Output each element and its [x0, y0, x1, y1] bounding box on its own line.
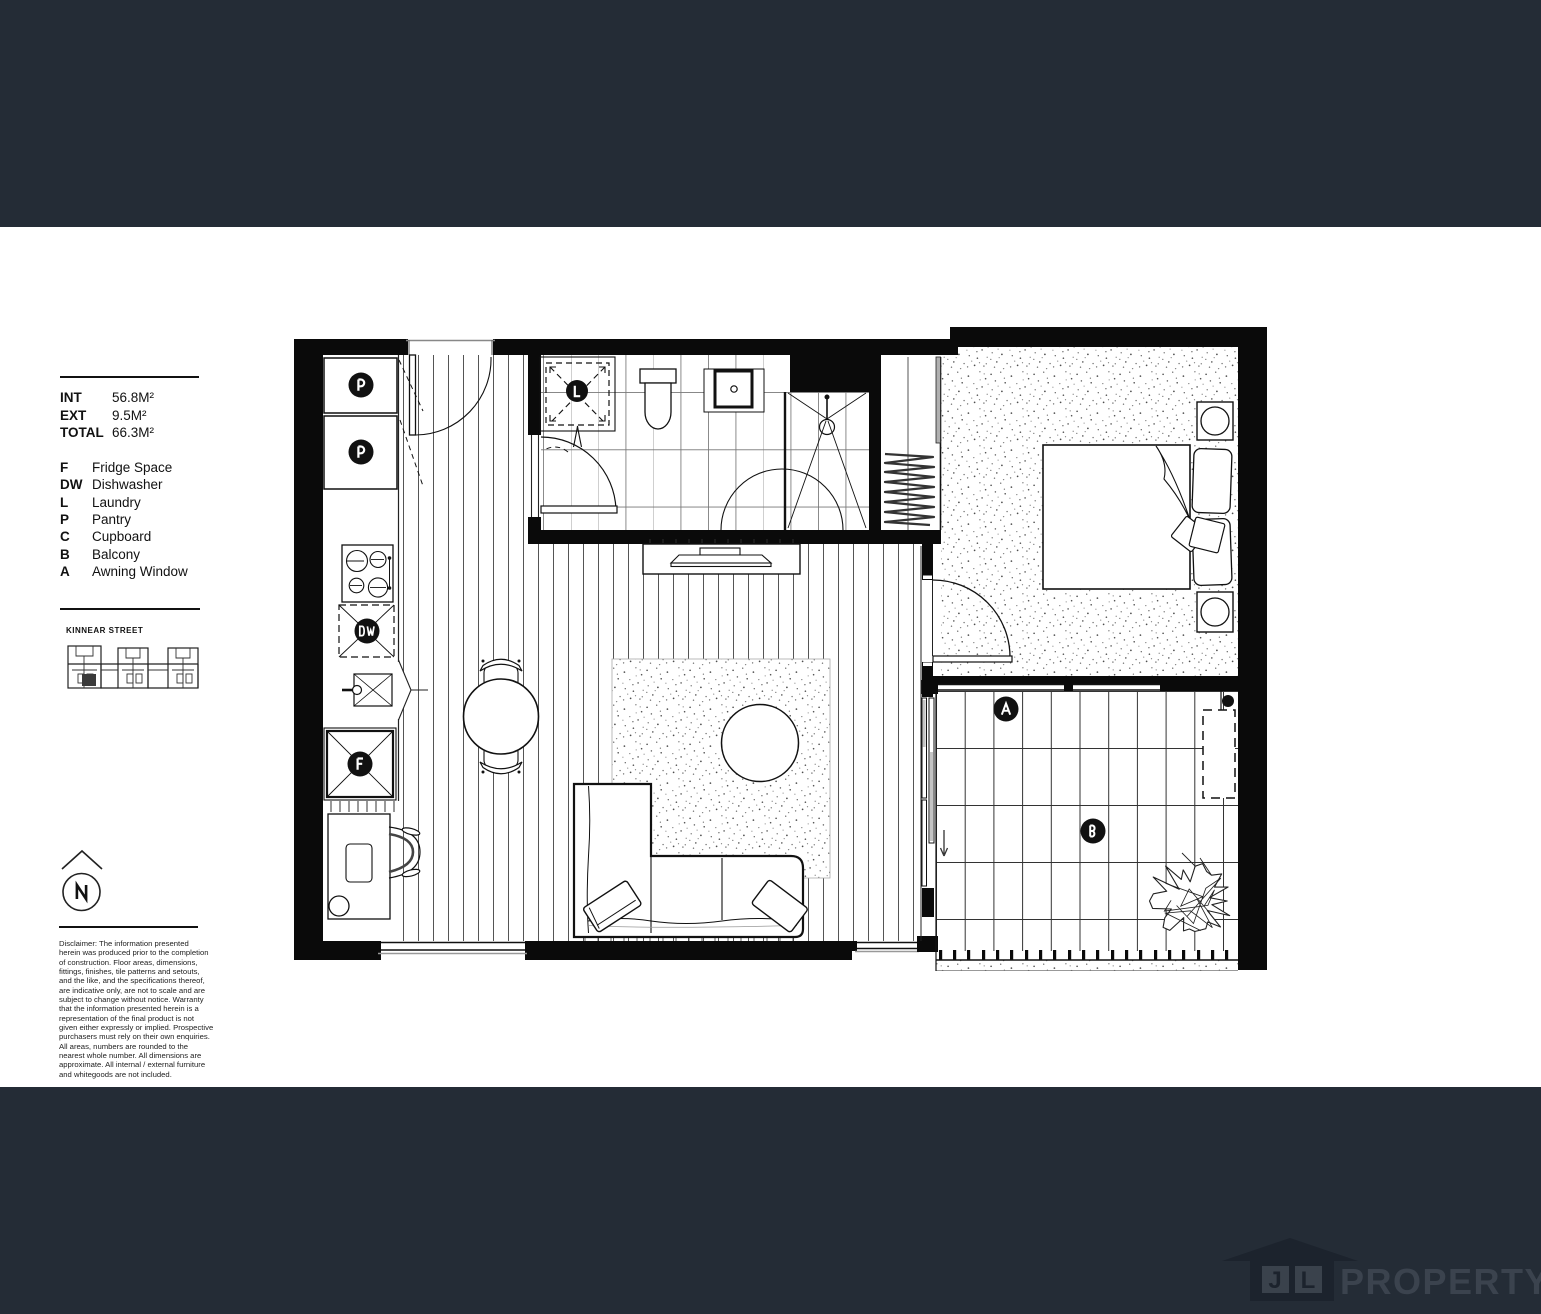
svg-text:PROPERTY: PROPERTY: [1340, 1261, 1541, 1302]
svg-text:J: J: [1268, 1267, 1281, 1294]
svg-text:L: L: [1301, 1267, 1316, 1294]
